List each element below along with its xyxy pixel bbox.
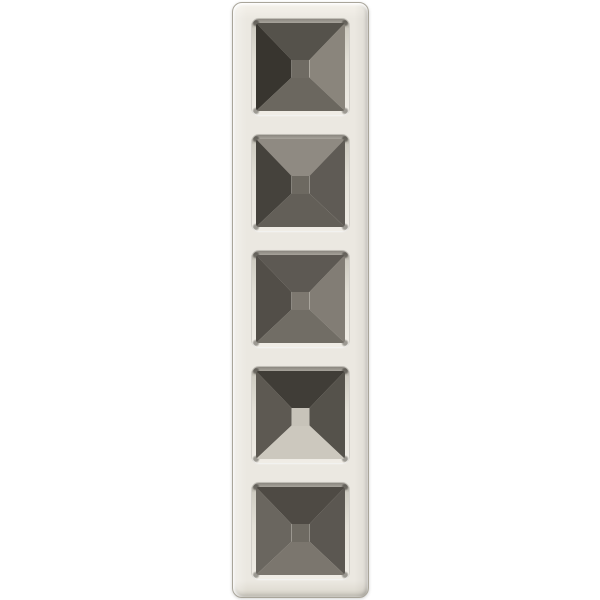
opening-cavity-2: [256, 139, 345, 227]
cavity-center: [292, 60, 310, 78]
frame-opening-3: [252, 251, 349, 347]
product-photo: [0, 0, 600, 600]
frame-opening-5: [252, 483, 349, 579]
cavity-center: [292, 524, 310, 542]
opening-cavity-1: [256, 23, 345, 111]
cavity-center: [292, 176, 310, 194]
opening-cavity-3: [256, 255, 345, 343]
opening-cavity-4: [256, 371, 345, 459]
opening-cavity-5: [256, 487, 345, 575]
frame-opening-1: [252, 19, 349, 115]
frame-opening-4: [252, 367, 349, 463]
cavity-center: [292, 408, 310, 426]
frame-opening-2: [252, 135, 349, 231]
cavity-center: [292, 292, 310, 310]
switch-frame-5-gang: [232, 2, 369, 598]
